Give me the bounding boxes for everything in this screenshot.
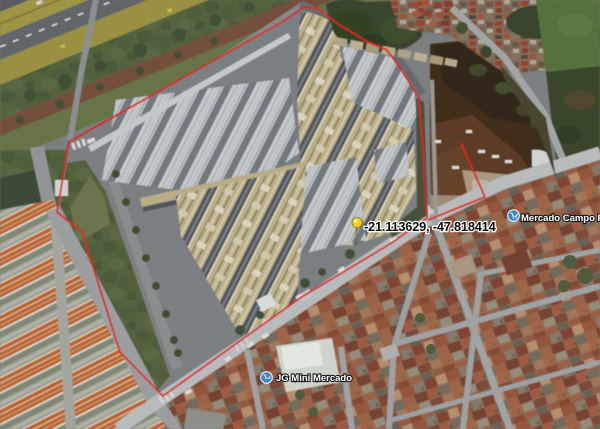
svg-text:JG Mini Mercado: JG Mini Mercado xyxy=(276,373,352,384)
svg-text:-21.113629, -47.818414: -21.113629, -47.818414 xyxy=(364,219,497,234)
svg-text:Mercado Campo Rea: Mercado Campo Rea xyxy=(521,213,600,224)
